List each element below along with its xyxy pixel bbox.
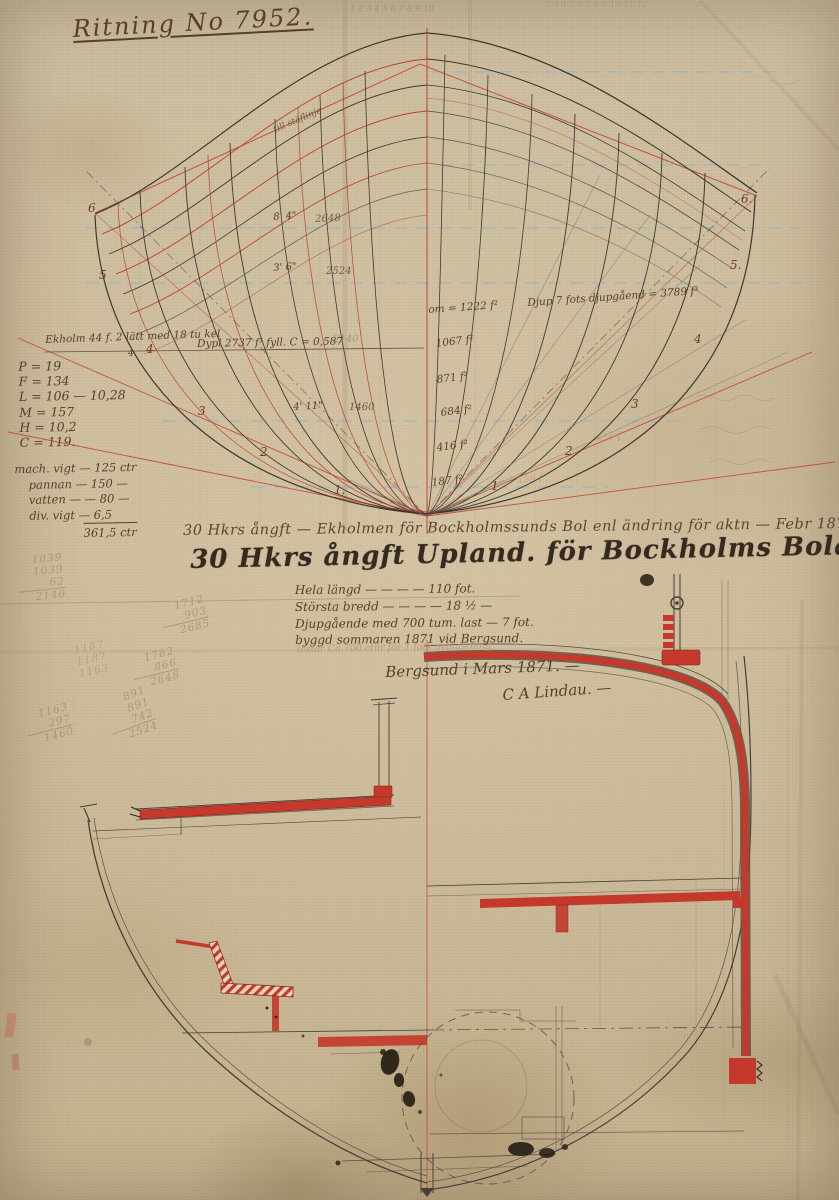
waterline-dim-1: 3' 6" — [273, 261, 297, 274]
constant-line: L = 106 — 10,28 — [19, 387, 126, 404]
drawing-sheet: Ritning No 7952. 1 2 3 4 5 6 7 8 9 10 2 … — [0, 0, 839, 1200]
pencil-scribble-top-2: 2 3 4 5 6 7 8 9 10 11 12 — [545, 1, 648, 11]
waterline-sum-0: 2648 — [315, 213, 341, 226]
waterline-dim-2: 4' 11" — [293, 400, 323, 413]
red-construction-lines — [8, 28, 835, 534]
plan-arcs-right — [427, 33, 757, 307]
ghost-area-1: 159 f — [517, 474, 543, 487]
constants-block: P = 19 F = 134 L = 106 — 10,28 M = 157 H… — [18, 357, 126, 450]
red-sheer-band — [424, 655, 762, 1084]
weights-block: mach. vigt — 125 ctr pannan — 150 — vatt… — [14, 460, 137, 542]
waterline-sum-1: 2524 — [326, 266, 351, 278]
keel-note-sub: 4 — [128, 349, 134, 359]
section-number-right-3: 3 — [631, 398, 639, 412]
section-number-right-1: 1 — [491, 480, 499, 494]
weight-row: vatten — — 80 — — [15, 491, 137, 509]
section-number-right-5: 5. — [730, 259, 741, 273]
fan-lines — [350, 175, 788, 516]
spec-line: Djupgående med 700 tum. last — 7 fot. — [295, 614, 534, 633]
pencil-scribble-top-1: 1 2 3 4 5 6 7 8 9 10 — [350, 5, 434, 15]
ink-blots — [302, 1035, 569, 1166]
pencil-scribbles — [695, 76, 800, 465]
right-hull — [424, 644, 751, 1190]
waterline-dim-0: 8' 4" — [273, 210, 297, 223]
displacement-note: Dypl 2737 f³ fyll. C = 0,587 — [197, 335, 343, 350]
section-number-right-4: 4 — [694, 333, 702, 347]
bench — [176, 941, 293, 1031]
section-number-left-5: 5 — [99, 269, 107, 283]
section-number-right-6: 6. — [741, 193, 752, 207]
section-number-left-6: 6 — [88, 202, 96, 216]
sections-right — [427, 55, 755, 514]
spec-line: Största bredd — — — — 18 ½ — — [295, 597, 534, 616]
weight-row: mach. vigt — 125 ctr — [14, 460, 136, 478]
section-number-left-1: 1. — [334, 484, 345, 498]
section-number-right-2: 2 — [565, 445, 573, 459]
section-number-left-4: 4 — [146, 343, 154, 357]
casing-post — [371, 698, 397, 797]
ghost-area-0: 416 f — [596, 432, 622, 445]
plan-arcs-left — [95, 33, 427, 354]
specs-block: Hela längd — — — — 110 fot. Största bred… — [295, 580, 534, 649]
constant-line: C = 119. — [20, 433, 127, 450]
body-plan-drawing — [8, 28, 835, 534]
weights-total: 361,5 ctr — [83, 522, 137, 541]
section-number-left-3: 3 — [198, 405, 206, 419]
sections-left-red — [118, 83, 427, 512]
floor-lines — [182, 1027, 748, 1054]
spec-line: Hela längd — — — — 110 fot. — [295, 580, 534, 599]
pencil-sum-a: 1039 1039 62 2140 — [16, 551, 67, 605]
right-deck — [427, 878, 749, 932]
waterline-sum-2: 1460 — [349, 402, 374, 414]
margin-smudges — [4, 1013, 92, 1071]
section-number-left-2: 2 — [260, 446, 268, 460]
deck-beam — [130, 795, 394, 820]
